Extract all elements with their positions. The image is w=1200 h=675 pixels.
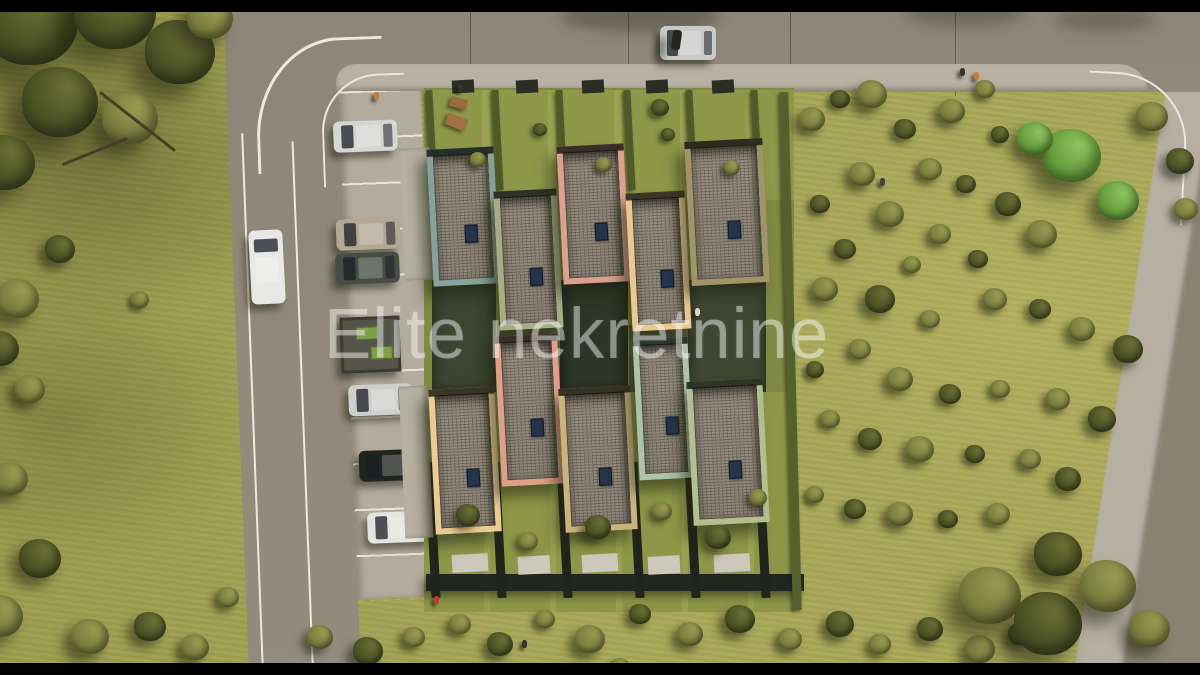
bush <box>217 587 239 607</box>
bush <box>22 67 98 137</box>
patio <box>518 555 551 575</box>
bush <box>1113 335 1143 363</box>
bush <box>844 499 866 519</box>
bush <box>869 634 891 654</box>
bush <box>858 428 882 450</box>
bush <box>1080 560 1136 612</box>
bush <box>810 195 830 213</box>
bush <box>661 128 675 141</box>
bush <box>487 632 513 656</box>
bush <box>920 310 940 328</box>
bush <box>939 99 965 123</box>
bush <box>1166 148 1194 174</box>
bush <box>181 634 209 660</box>
bush <box>876 201 904 227</box>
patio <box>714 553 751 573</box>
bush <box>470 152 486 167</box>
bush <box>575 625 605 653</box>
bush <box>533 123 547 136</box>
bush <box>903 256 921 273</box>
bush <box>918 158 942 180</box>
bush <box>0 279 39 318</box>
person <box>522 640 527 648</box>
skylight <box>464 224 478 243</box>
bush <box>887 367 913 391</box>
person <box>458 84 463 92</box>
entry-path <box>452 79 475 93</box>
skylight <box>598 467 612 486</box>
skylight <box>466 468 480 487</box>
bush <box>518 532 538 550</box>
bush <box>826 611 854 637</box>
letterbox-bottom <box>0 663 1200 675</box>
bush <box>705 525 731 549</box>
bush <box>1029 299 1051 319</box>
bush <box>849 162 875 186</box>
terrace-strip <box>426 574 804 591</box>
bush <box>652 502 672 520</box>
skylight <box>665 416 679 435</box>
bush <box>596 157 612 172</box>
person <box>880 178 885 186</box>
bush <box>1069 317 1095 341</box>
bush <box>939 384 961 404</box>
person <box>374 92 379 100</box>
bush <box>131 291 149 308</box>
bush <box>887 502 913 526</box>
bush <box>134 612 166 641</box>
bush <box>806 486 824 503</box>
bush <box>45 235 75 263</box>
aerial-render: Elite nekretnine <box>0 0 1200 675</box>
bush <box>307 625 333 649</box>
watermark: Elite nekretnine <box>324 294 829 375</box>
bush <box>938 510 958 528</box>
roof-tiles <box>565 392 632 527</box>
roof-tiles <box>563 150 625 279</box>
bush <box>1055 467 1081 491</box>
entry-path <box>582 79 605 93</box>
entry-path <box>516 79 539 93</box>
bush <box>849 339 871 359</box>
car-windshield <box>253 238 278 253</box>
bush <box>71 619 109 654</box>
car-roof <box>680 31 701 54</box>
skylight <box>728 460 742 479</box>
entry-path <box>712 79 735 93</box>
person <box>974 72 979 80</box>
bush <box>991 126 1009 143</box>
bush <box>965 635 995 663</box>
bush <box>865 285 895 313</box>
bush <box>449 614 471 634</box>
bush <box>929 224 951 244</box>
bush <box>403 627 425 647</box>
bush <box>965 445 985 463</box>
bush <box>830 90 850 108</box>
bush <box>1088 406 1116 432</box>
bush <box>894 119 916 139</box>
car-rear-window <box>704 31 712 55</box>
bush <box>677 622 703 646</box>
moving-car-left-road <box>248 229 286 305</box>
house-roof-N3 <box>556 143 630 284</box>
bush <box>651 99 669 116</box>
bush <box>995 192 1021 216</box>
skylight <box>727 220 741 239</box>
bush <box>990 380 1010 398</box>
house-roof-N1 <box>426 146 500 286</box>
bush <box>799 107 825 131</box>
bush <box>1034 532 1082 576</box>
bush <box>456 504 480 526</box>
bush <box>1130 610 1170 647</box>
letterbox-top <box>0 0 1200 12</box>
roof-tiles <box>433 153 494 281</box>
bush <box>353 637 383 665</box>
bush <box>629 604 651 624</box>
bush <box>535 610 555 628</box>
bush <box>983 288 1007 310</box>
bush <box>1097 181 1139 220</box>
patio <box>648 555 681 575</box>
bush <box>956 175 976 193</box>
bush <box>917 617 943 641</box>
bush <box>1136 102 1168 131</box>
patio <box>582 553 619 573</box>
patio <box>452 553 489 573</box>
car-roof <box>254 256 280 284</box>
bush <box>1017 122 1053 155</box>
bush <box>1014 592 1082 655</box>
house-roof-S3 <box>558 385 637 533</box>
bush <box>778 628 802 650</box>
bush <box>19 539 61 578</box>
skylight <box>660 269 674 288</box>
bush <box>15 375 45 403</box>
bush <box>1174 198 1198 220</box>
bush <box>906 436 934 462</box>
bush <box>820 410 840 428</box>
entry-path <box>646 79 669 93</box>
bush <box>585 515 611 539</box>
bush <box>959 567 1021 624</box>
skylight <box>530 418 544 437</box>
skylight <box>529 267 543 286</box>
bush <box>968 250 988 268</box>
person <box>434 596 439 604</box>
bush <box>834 239 856 259</box>
bush <box>725 605 755 633</box>
skylight <box>594 222 608 241</box>
bush <box>986 503 1010 525</box>
bush <box>1027 220 1057 248</box>
bush <box>857 80 887 108</box>
person <box>960 68 965 76</box>
bush <box>1019 449 1041 469</box>
bush <box>724 160 740 175</box>
bush <box>749 489 767 506</box>
bush <box>975 80 995 98</box>
moving-car-top-road <box>660 26 716 60</box>
bush <box>1046 388 1070 410</box>
